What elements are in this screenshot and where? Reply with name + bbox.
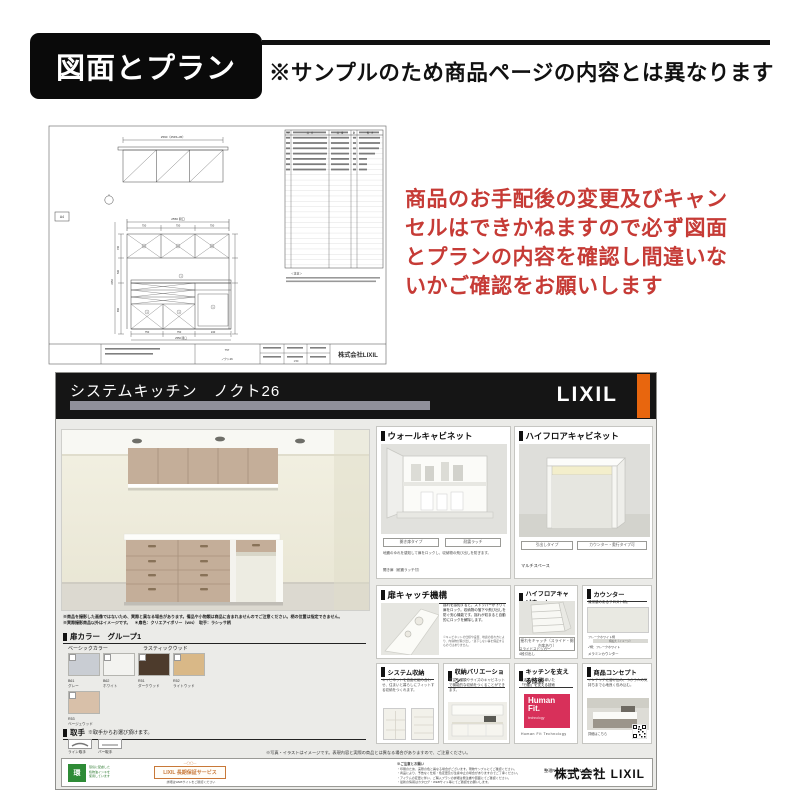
panel-caption: 4段引出し [519, 652, 535, 657]
footer-notes: ※ご注意とお願い ・印刷のため、実際の色と異なる場合がございます。現物サンプルに… [397, 762, 537, 784]
cancellation-warning: 商品のお手配後の変更及びキャン セルはできかねますので必ず図面 とプランの内容を… [405, 185, 785, 301]
svg-text:750: 750 [176, 224, 181, 228]
door-swatch[interactable] [68, 691, 100, 714]
panel-caption: マルチスペース [521, 563, 550, 569]
drawer-stack-photo [519, 601, 575, 635]
page: 図面とプラン ※サンプルのため商品ページの内容とは異なります 商品のお手配後の変… [0, 0, 800, 800]
panel-hifloor-small: ハイフロアキャビネット 揺れをキャッチ（スライド・開き扉あり） スライドストッカ… [514, 585, 578, 659]
handle-title: 取手 [70, 727, 85, 738]
section-title-badge: 図面とプラン [30, 33, 262, 99]
svg-text:757: 757 [225, 348, 230, 352]
section-bullet [63, 633, 67, 641]
sheet-header-bar [70, 401, 430, 410]
elev-dim-label: 2550 間口 [171, 216, 185, 221]
handle-note: ※取手からお選び頂けます。 [88, 729, 153, 736]
footer-company: 株式会社 LIXIL [554, 765, 645, 782]
swatch-label: R51ダークウッド [138, 679, 172, 688]
panel-concept: 商品コンセプト インテリアに溶け込み、つかう人の気持ちまで心地良く包み込む。 [582, 663, 652, 744]
warning-line: セルはできかねますので必ず図面 [405, 214, 785, 243]
svg-text:1:50: 1:50 [294, 360, 299, 363]
panel-body: 生活者研究から導いた「行動」を支える技術 [520, 678, 576, 688]
door-swatch[interactable] [103, 653, 135, 676]
svg-text:750: 750 [145, 330, 150, 334]
door-catch-photo [381, 603, 439, 655]
svg-text:ノクト26: ノクト26 [221, 357, 233, 361]
cad-drawing-svg: 2590（2545+45） 2550 間口 750 750 750 750 75… [45, 122, 390, 372]
render-wall-cabinet [128, 448, 278, 491]
panel-note: 地震のゆれを感知して扉をロックし、収納物の飛び出しを防ぎます。 [383, 551, 505, 556]
door-swatch[interactable] [138, 653, 170, 676]
panel-caption: 詳細はこちら [588, 731, 607, 736]
header-rule [262, 40, 770, 45]
handle-label: バー取手 [98, 750, 132, 755]
panel-body: インテリアに溶け込み、つかう人の気持ちまで心地良く包み込む。 [588, 678, 648, 688]
drawing-note-head: ＜注意＞ [291, 272, 302, 276]
panel-body: 豊富な種類やサイズのキャビネットで機能的な収納をつくることができます。 [449, 678, 507, 693]
warranty-deco: —◯◯— [154, 761, 226, 765]
swatch-label: B62ホワイト [103, 679, 137, 688]
warning-line: いかご確認をお願いします [405, 272, 785, 301]
warning-line: とプランの内容を確認し間違いな [405, 243, 785, 272]
panel-button[interactable]: 開き扉タイプ [383, 538, 439, 547]
panel-counter: カウンター 清潔感のあるフロスト柄。 フレークホワイト柄 柄拡大（イメージ） ✓… [582, 585, 652, 659]
panel-door-catch: 扉キャッチ機構 揺れを感知すると、ストッパーが下りて扉をロック。収納物の落下や飛… [376, 585, 511, 659]
door-swatch[interactable] [68, 653, 100, 676]
svg-text:2550 間口: 2550 間口 [175, 336, 187, 340]
handle-option[interactable] [68, 739, 92, 749]
svg-text:750: 750 [142, 224, 147, 228]
storage-thumb [411, 708, 434, 740]
panel-title: システム収納 [388, 668, 425, 677]
drawing-company: 株式会社LIXIL [338, 351, 378, 359]
storage-thumb [383, 708, 406, 740]
eco-badge: 環 [68, 764, 86, 782]
handle-label: ライン取手 [68, 750, 102, 755]
panel-caption: Human Fit Technology [521, 732, 567, 736]
wall-cabinet-photo [381, 444, 507, 534]
svg-text:850: 850 [117, 307, 120, 312]
door-swatch[interactable] [173, 653, 205, 676]
sheet-accent-strip [637, 374, 650, 418]
door-color-header: 扉カラー グループ1 [63, 631, 366, 644]
panel-body: 揺れを感知すると、ストッパーが下りて扉をロック。収納物の落下や飛び出しを防ぐ安心… [443, 603, 507, 623]
sheet-header: システムキッチン ノクト26 LIXIL [56, 373, 656, 419]
product-sheet: システムキッチン ノクト26 LIXIL [55, 372, 657, 790]
svg-text:750: 750 [210, 224, 215, 228]
counter-swatch [587, 607, 649, 633]
qr-code [632, 724, 647, 739]
sheet-footnote: ※写真・イラストはイメージです。表現内容と実際の商品とは異なる場合がありますので… [266, 750, 470, 756]
panel-button[interactable]: 耐震ラッチ [445, 538, 501, 547]
panel-caption: メラミンカウンター [588, 651, 619, 656]
page-label: A4 [60, 215, 64, 219]
handle-option[interactable] [98, 739, 122, 749]
eco-badge-text: 環境に配慮した 植物油インキを 使用しています [89, 765, 151, 779]
panel-note: ※キャビネットの仕様や設置、地震の揺れ方により、内容物が飛び出し・落下しない事を… [443, 636, 507, 648]
svg-text:750: 750 [177, 330, 182, 334]
sheet-footer: 環 環境に配慮した 植物油インキを 使用しています —◯◯— LIXIL 長期保… [61, 758, 653, 787]
panel-wall-cabinet: ウォールキャビネット 開き扉タイプ 耐震ラッチ 地震のゆれを感知して扉をロックし [376, 426, 511, 579]
counter-swatch-note: ✓柄：フレークホワイト [588, 645, 620, 649]
panel-technology: キッチンを支える技術 生活者研究から導いた「行動」を支える技術 Human Fi… [514, 663, 578, 744]
color-group1-label: ベーシックカラー [68, 645, 108, 652]
warning-line: 商品のお手配後の変更及びキャン [405, 185, 785, 214]
door-color-title: 扉カラー グループ1 [70, 631, 141, 642]
counter-label2: 柄拡大（イメージ） [593, 639, 648, 643]
panel-title: カウンター [594, 590, 625, 599]
sheet-title: システムキッチン ノクト26 [70, 380, 280, 401]
svg-text:240: 240 [211, 330, 216, 334]
panel-button[interactable]: 引出しタイプ [521, 541, 573, 550]
panel-title: 扉キャッチ機構 [388, 589, 448, 601]
cad-drawing: 2590（2545+45） 2550 間口 750 750 750 750 75… [45, 122, 390, 372]
panel-title: 商品コンセプト [594, 668, 637, 677]
human-fit-logo: Human Fit. technology [524, 694, 570, 728]
svg-text:2350: 2350 [111, 279, 114, 285]
section-bullet [63, 729, 67, 737]
render-disclaimer: ※商品を撮影した画像ではないため、実際と異なる場合があります。備品や小物類は商品… [63, 614, 366, 625]
kitchen-render [61, 429, 370, 611]
panel-hifloor-cabinet: ハイフロアキャビネット 引出しタイプ カウンター・奥行タイプ可 マルチスペース [514, 426, 653, 579]
warranty-badge: LIXIL 長期保証サービス [154, 766, 226, 779]
svg-text:700: 700 [117, 245, 120, 250]
plan-dim-label: 2590（2545+45） [161, 135, 185, 139]
panel-storage-variation: 収納バリエーション 豊富な種類やサイズのキャビネットで機能的な収納をつくることが… [443, 663, 510, 744]
sample-note: ※サンプルのため商品ページの内容とは異なります [269, 56, 774, 87]
swatch-label: R52ライトウッド [173, 679, 207, 688]
panel-system-storage: システム収納 キャビネットを自由に組み合わせ、住まいと暮らしにフィットする収納を… [376, 663, 439, 744]
panel-caption: 開き扉（耐震ラッチ付） [383, 568, 505, 573]
swatch-label: B61グレー [68, 679, 102, 688]
variation-photo [448, 702, 507, 740]
panel-body: 清潔感のあるフロスト柄。 [588, 600, 630, 605]
svg-text:500: 500 [117, 269, 120, 274]
panel-button[interactable]: カウンター・奥行タイプ可 [577, 541, 647, 550]
panel-body: キャビネットを自由に組み合わせ、住まいと暮らしにフィットする収納をつくれます。 [382, 678, 436, 693]
hifloor-cabinet-photo [519, 444, 650, 537]
color-group2-label: ラスティックウッド [143, 645, 188, 652]
swatch-label: R53ベージュウッド [68, 717, 102, 726]
render-base-cabinet [124, 534, 283, 606]
panel-title: ハイフロアキャビネット [526, 430, 619, 442]
warranty-sub: 詳細はWEBサイトをご確認ください [150, 780, 232, 784]
lixil-logo: LIXIL [557, 383, 618, 407]
panel-title: ウォールキャビネット [388, 430, 473, 442]
